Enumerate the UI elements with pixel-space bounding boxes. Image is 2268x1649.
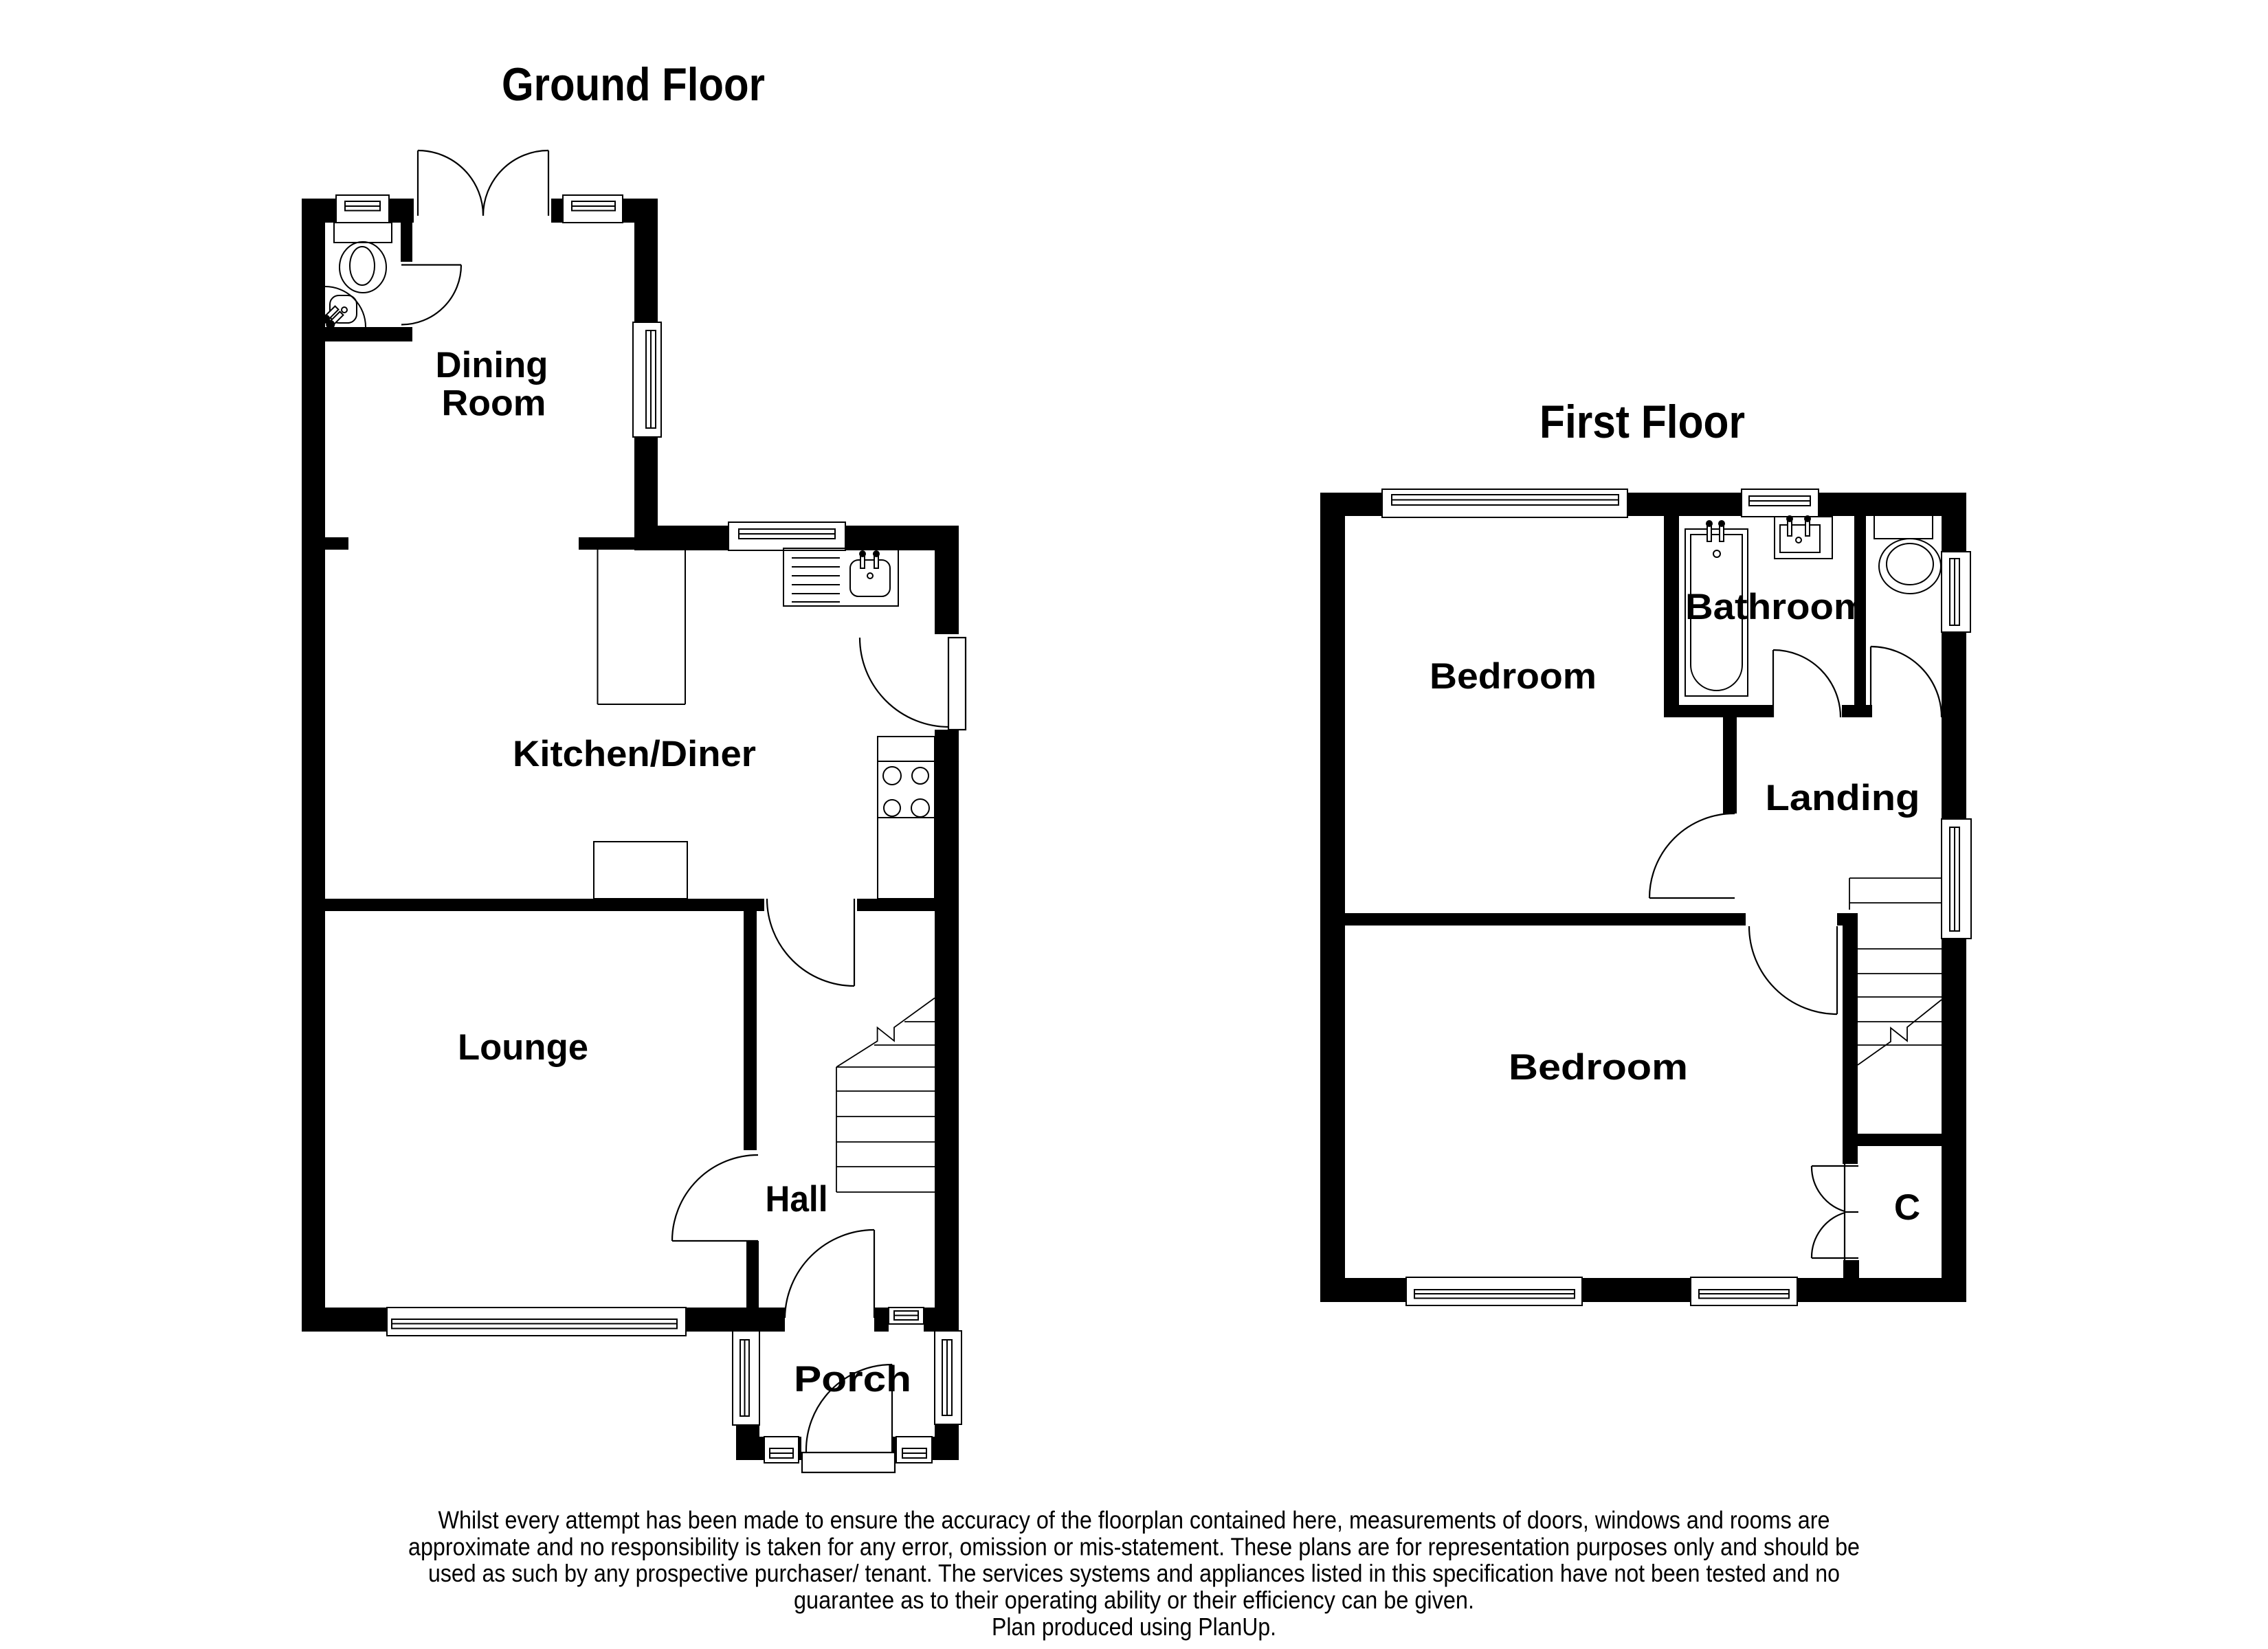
svg-text:guarantee as to their operatin: guarantee as to their operating ability … (794, 1586, 1474, 1614)
svg-text:Dining: Dining (436, 345, 548, 385)
svg-text:C: C (1894, 1187, 1920, 1228)
svg-text:Whilst every attempt has been: Whilst every attempt has been made to en… (438, 1506, 1830, 1534)
svg-text:Kitchen/Diner: Kitchen/Diner (513, 734, 756, 774)
svg-text:used as such by any prospectiv: used as such by any prospective purchase… (428, 1559, 1840, 1587)
svg-text:Bedroom: Bedroom (1509, 1047, 1688, 1088)
svg-text:Bathroom: Bathroom (1685, 587, 1868, 627)
svg-text:approximate and no responsibil: approximate and no responsibility is tak… (408, 1532, 1860, 1560)
svg-text:Plan produced using PlanUp.: Plan produced using PlanUp. (992, 1613, 1276, 1641)
svg-text:First Floor: First Floor (1539, 396, 1745, 448)
svg-text:Hall: Hall (766, 1179, 828, 1220)
svg-text:Porch: Porch (794, 1359, 911, 1400)
svg-text:Lounge: Lounge (458, 1027, 588, 1068)
svg-text:Bedroom: Bedroom (1430, 656, 1597, 697)
svg-text:Room: Room (442, 383, 546, 424)
svg-text:Ground Floor: Ground Floor (502, 58, 765, 111)
svg-text:Landing: Landing (1766, 778, 1920, 818)
